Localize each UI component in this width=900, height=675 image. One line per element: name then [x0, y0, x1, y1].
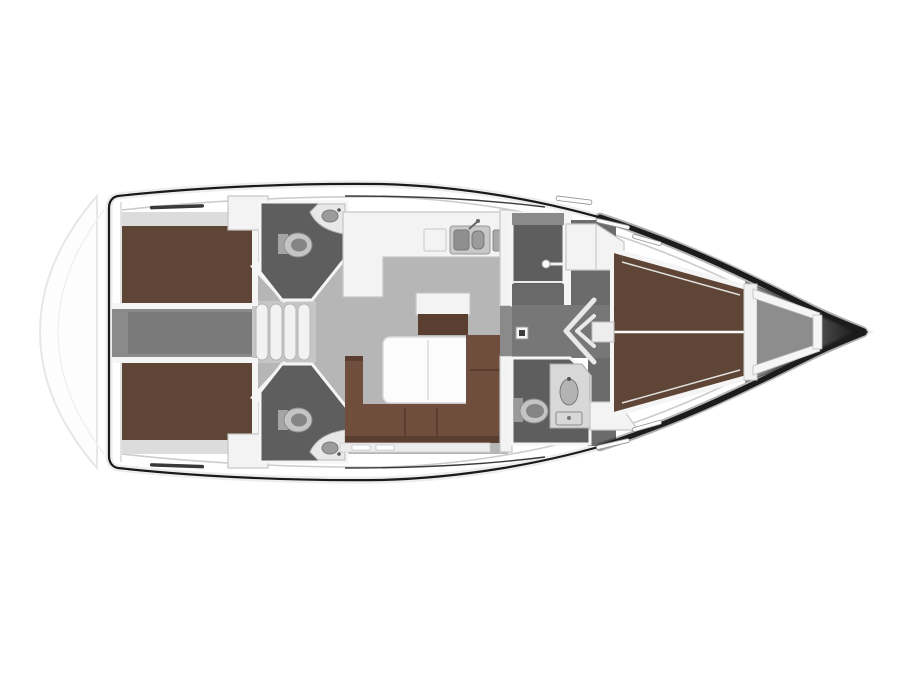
aft-berth-port: [122, 226, 256, 310]
corridor-opening: [500, 306, 514, 356]
toilet-forward: [514, 398, 548, 423]
yacht-floor-plan-page: [0, 0, 900, 675]
anchor-locker: [753, 289, 822, 375]
folding-salon-table: [383, 337, 473, 403]
door-latch: [516, 327, 528, 339]
settee-plinth: [340, 443, 490, 452]
washbasin-forward: [550, 364, 590, 428]
shower-room: [512, 213, 566, 305]
berth-step: [592, 322, 614, 342]
engine-wall-top: [112, 303, 258, 309]
forward-head: [512, 358, 590, 444]
engine-bay-inner: [128, 312, 254, 354]
toilet-aft-starboard: [278, 408, 312, 432]
yacht-layout-plan: [0, 0, 900, 675]
swim-platform: [40, 196, 104, 468]
companionway-steps: [252, 301, 316, 363]
bulkhead-mid-bottom: [500, 356, 512, 452]
bulkhead-mid-top: [500, 210, 512, 306]
aft-berth-starboard: [122, 356, 256, 440]
engine-wall-bottom: [112, 357, 258, 363]
sideboard-chart-table: [416, 293, 470, 335]
toilet-aft-port: [278, 233, 312, 257]
